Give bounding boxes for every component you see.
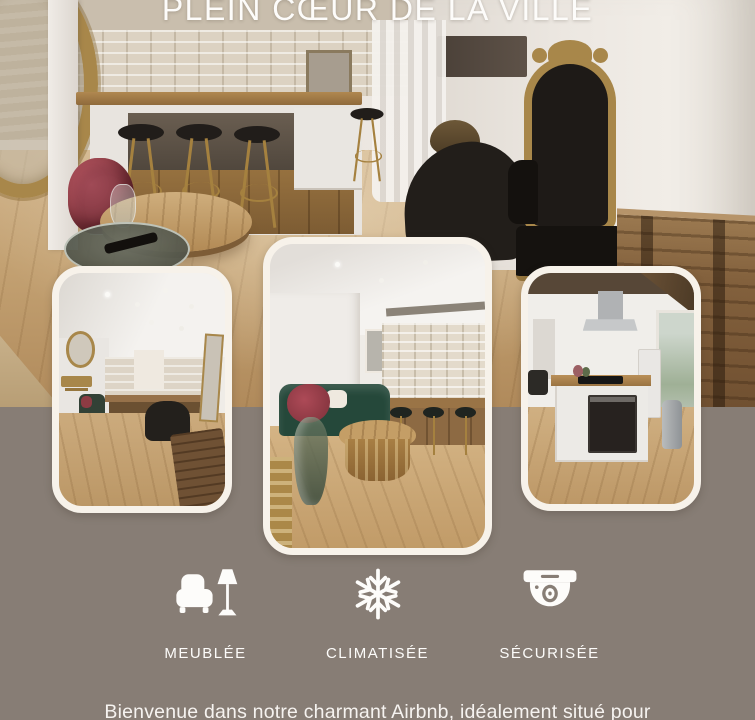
page-title: PLEIN CŒUR DE LA VILLE bbox=[0, 0, 755, 25]
feature-label: MEUBLÉE bbox=[148, 645, 264, 662]
extractor-hood bbox=[583, 319, 638, 331]
coffee-table-base bbox=[345, 439, 410, 482]
bar-counter bbox=[76, 92, 362, 105]
trash-can bbox=[662, 400, 682, 449]
wooden-trunk bbox=[170, 428, 232, 513]
features-row: MEUBLÉE CLIMATISÉE bbox=[0, 566, 755, 662]
armchair-lamp-icon bbox=[148, 566, 264, 622]
intro-text: Bienvenue dans notre charmant Airbnb, id… bbox=[0, 699, 755, 720]
feature-furnished: MEUBLÉE bbox=[148, 566, 264, 662]
feature-air-conditioned: CLIMATISÉE bbox=[320, 566, 436, 662]
security-camera-icon bbox=[492, 566, 608, 622]
brick-wall bbox=[78, 30, 408, 96]
brick-wall bbox=[382, 323, 485, 402]
bar-stool bbox=[423, 407, 445, 456]
spotlights bbox=[335, 262, 340, 267]
extractor-hood-pipe bbox=[598, 291, 623, 321]
listing-flyer: PLEIN CŒUR DE LA VILLE bbox=[0, 0, 755, 720]
feature-secured: SÉCURISÉE bbox=[492, 566, 608, 662]
gold-mirror bbox=[66, 331, 95, 367]
flowers bbox=[573, 365, 583, 377]
feature-label: SÉCURISÉE bbox=[492, 645, 608, 662]
oven bbox=[588, 395, 637, 452]
glass-vase bbox=[294, 417, 328, 505]
dark-sofa bbox=[528, 370, 548, 395]
red-pillow bbox=[81, 396, 93, 408]
feature-label: CLIMATISÉE bbox=[320, 645, 436, 662]
gallery-card-kitchen bbox=[521, 266, 701, 511]
baroque-throne-chair bbox=[514, 40, 626, 302]
bar-stool bbox=[455, 407, 477, 456]
fireplace-hood bbox=[134, 350, 164, 390]
bar-stool bbox=[350, 108, 383, 184]
gold-console bbox=[270, 457, 292, 548]
gallery-card-living-room bbox=[52, 266, 232, 513]
gallery-card-salon bbox=[263, 237, 492, 555]
cooktop bbox=[578, 376, 623, 384]
snowflake-icon bbox=[320, 566, 436, 622]
gold-console-table bbox=[61, 376, 93, 388]
